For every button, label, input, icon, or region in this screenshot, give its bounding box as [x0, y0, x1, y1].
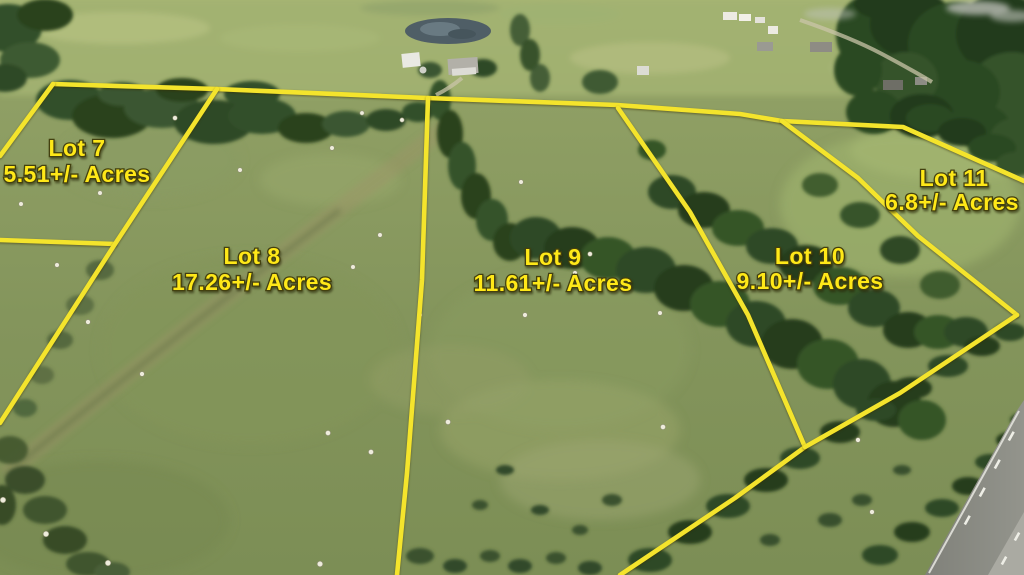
- lot-9-acreage: 11.61+/- Acres: [474, 270, 633, 296]
- silo: [420, 67, 427, 74]
- lot-8-name: Lot 8: [224, 243, 281, 269]
- white-barn: [401, 52, 420, 68]
- dark-barn: [883, 80, 903, 90]
- aerial-photo-canvas: Lot 7 5.51+/- Acres Lot 8 17.26+/- Acres…: [0, 0, 1024, 575]
- small-house: [637, 66, 649, 75]
- grey-shed: [757, 42, 773, 51]
- lot-7-name: Lot 7: [49, 135, 106, 161]
- lot-11-acreage: 6.8+/- Acres: [885, 189, 1019, 215]
- outbuilding: [739, 14, 751, 21]
- lot-8-acreage: 17.26+/- Acres: [172, 269, 332, 295]
- outbuilding: [723, 12, 737, 20]
- lot-10-acreage: 9.10+/- Acres: [737, 268, 884, 294]
- outbuilding: [768, 26, 778, 34]
- aerial-lot-map: Lot 7 5.51+/- Acres Lot 8 17.26+/- Acres…: [0, 0, 1024, 575]
- lot-7-acreage: 5.51+/- Acres: [4, 161, 151, 187]
- lot-11-name: Lot 11: [920, 165, 989, 191]
- pond: [405, 18, 491, 44]
- outbuilding: [755, 17, 765, 23]
- lot-10-name: Lot 10: [775, 243, 845, 269]
- barn: [810, 42, 832, 52]
- lot-9-name: Lot 9: [525, 244, 582, 270]
